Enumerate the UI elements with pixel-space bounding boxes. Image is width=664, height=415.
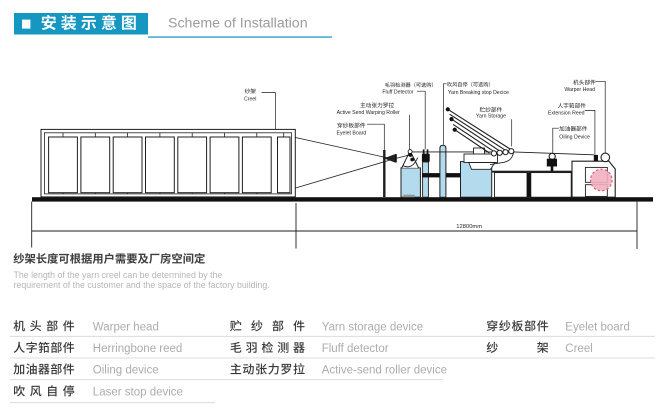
svg-text:12800mm: 12800mm — [456, 224, 482, 230]
svg-text:requirement of the customer an: requirement of the customer and the spac… — [14, 280, 270, 290]
svg-text:Oiling Device: Oiling Device — [559, 135, 590, 141]
svg-text:Active-send roller device: Active-send roller device — [322, 365, 447, 377]
svg-text:Herringbone reed: Herringbone reed — [93, 343, 183, 355]
svg-text:Warper head: Warper head — [93, 321, 159, 333]
svg-text:Fluff Detector: Fluff Detector — [382, 89, 413, 95]
svg-text:Creel: Creel — [244, 97, 256, 103]
svg-text:Active Send Warping Roller: Active Send Warping Roller — [337, 110, 401, 116]
svg-text:Creel: Creel — [565, 343, 592, 355]
svg-text:Scheme of Installation: Scheme of Installation — [168, 16, 308, 32]
svg-text:The length of the yarn creel c: The length of the yarn creel can be dete… — [14, 270, 223, 280]
svg-text:Yarn storage device: Yarn storage device — [322, 321, 423, 333]
svg-text:Yarn Breaking stop Decice: Yarn Breaking stop Decice — [448, 90, 509, 96]
svg-text:Laser stop device: Laser stop device — [93, 386, 183, 398]
svg-text:Oiling device: Oiling device — [93, 365, 159, 377]
svg-text:Eyelet Board: Eyelet Board — [337, 130, 367, 136]
svg-text:Eyelet board: Eyelet board — [565, 321, 630, 333]
svg-text:Yarn Storage: Yarn Storage — [476, 114, 506, 120]
svg-text:Warper Head: Warper Head — [564, 87, 595, 93]
svg-text:Extension Reed: Extension Reed — [548, 110, 585, 116]
svg-text:Fluff detector: Fluff detector — [322, 343, 389, 355]
